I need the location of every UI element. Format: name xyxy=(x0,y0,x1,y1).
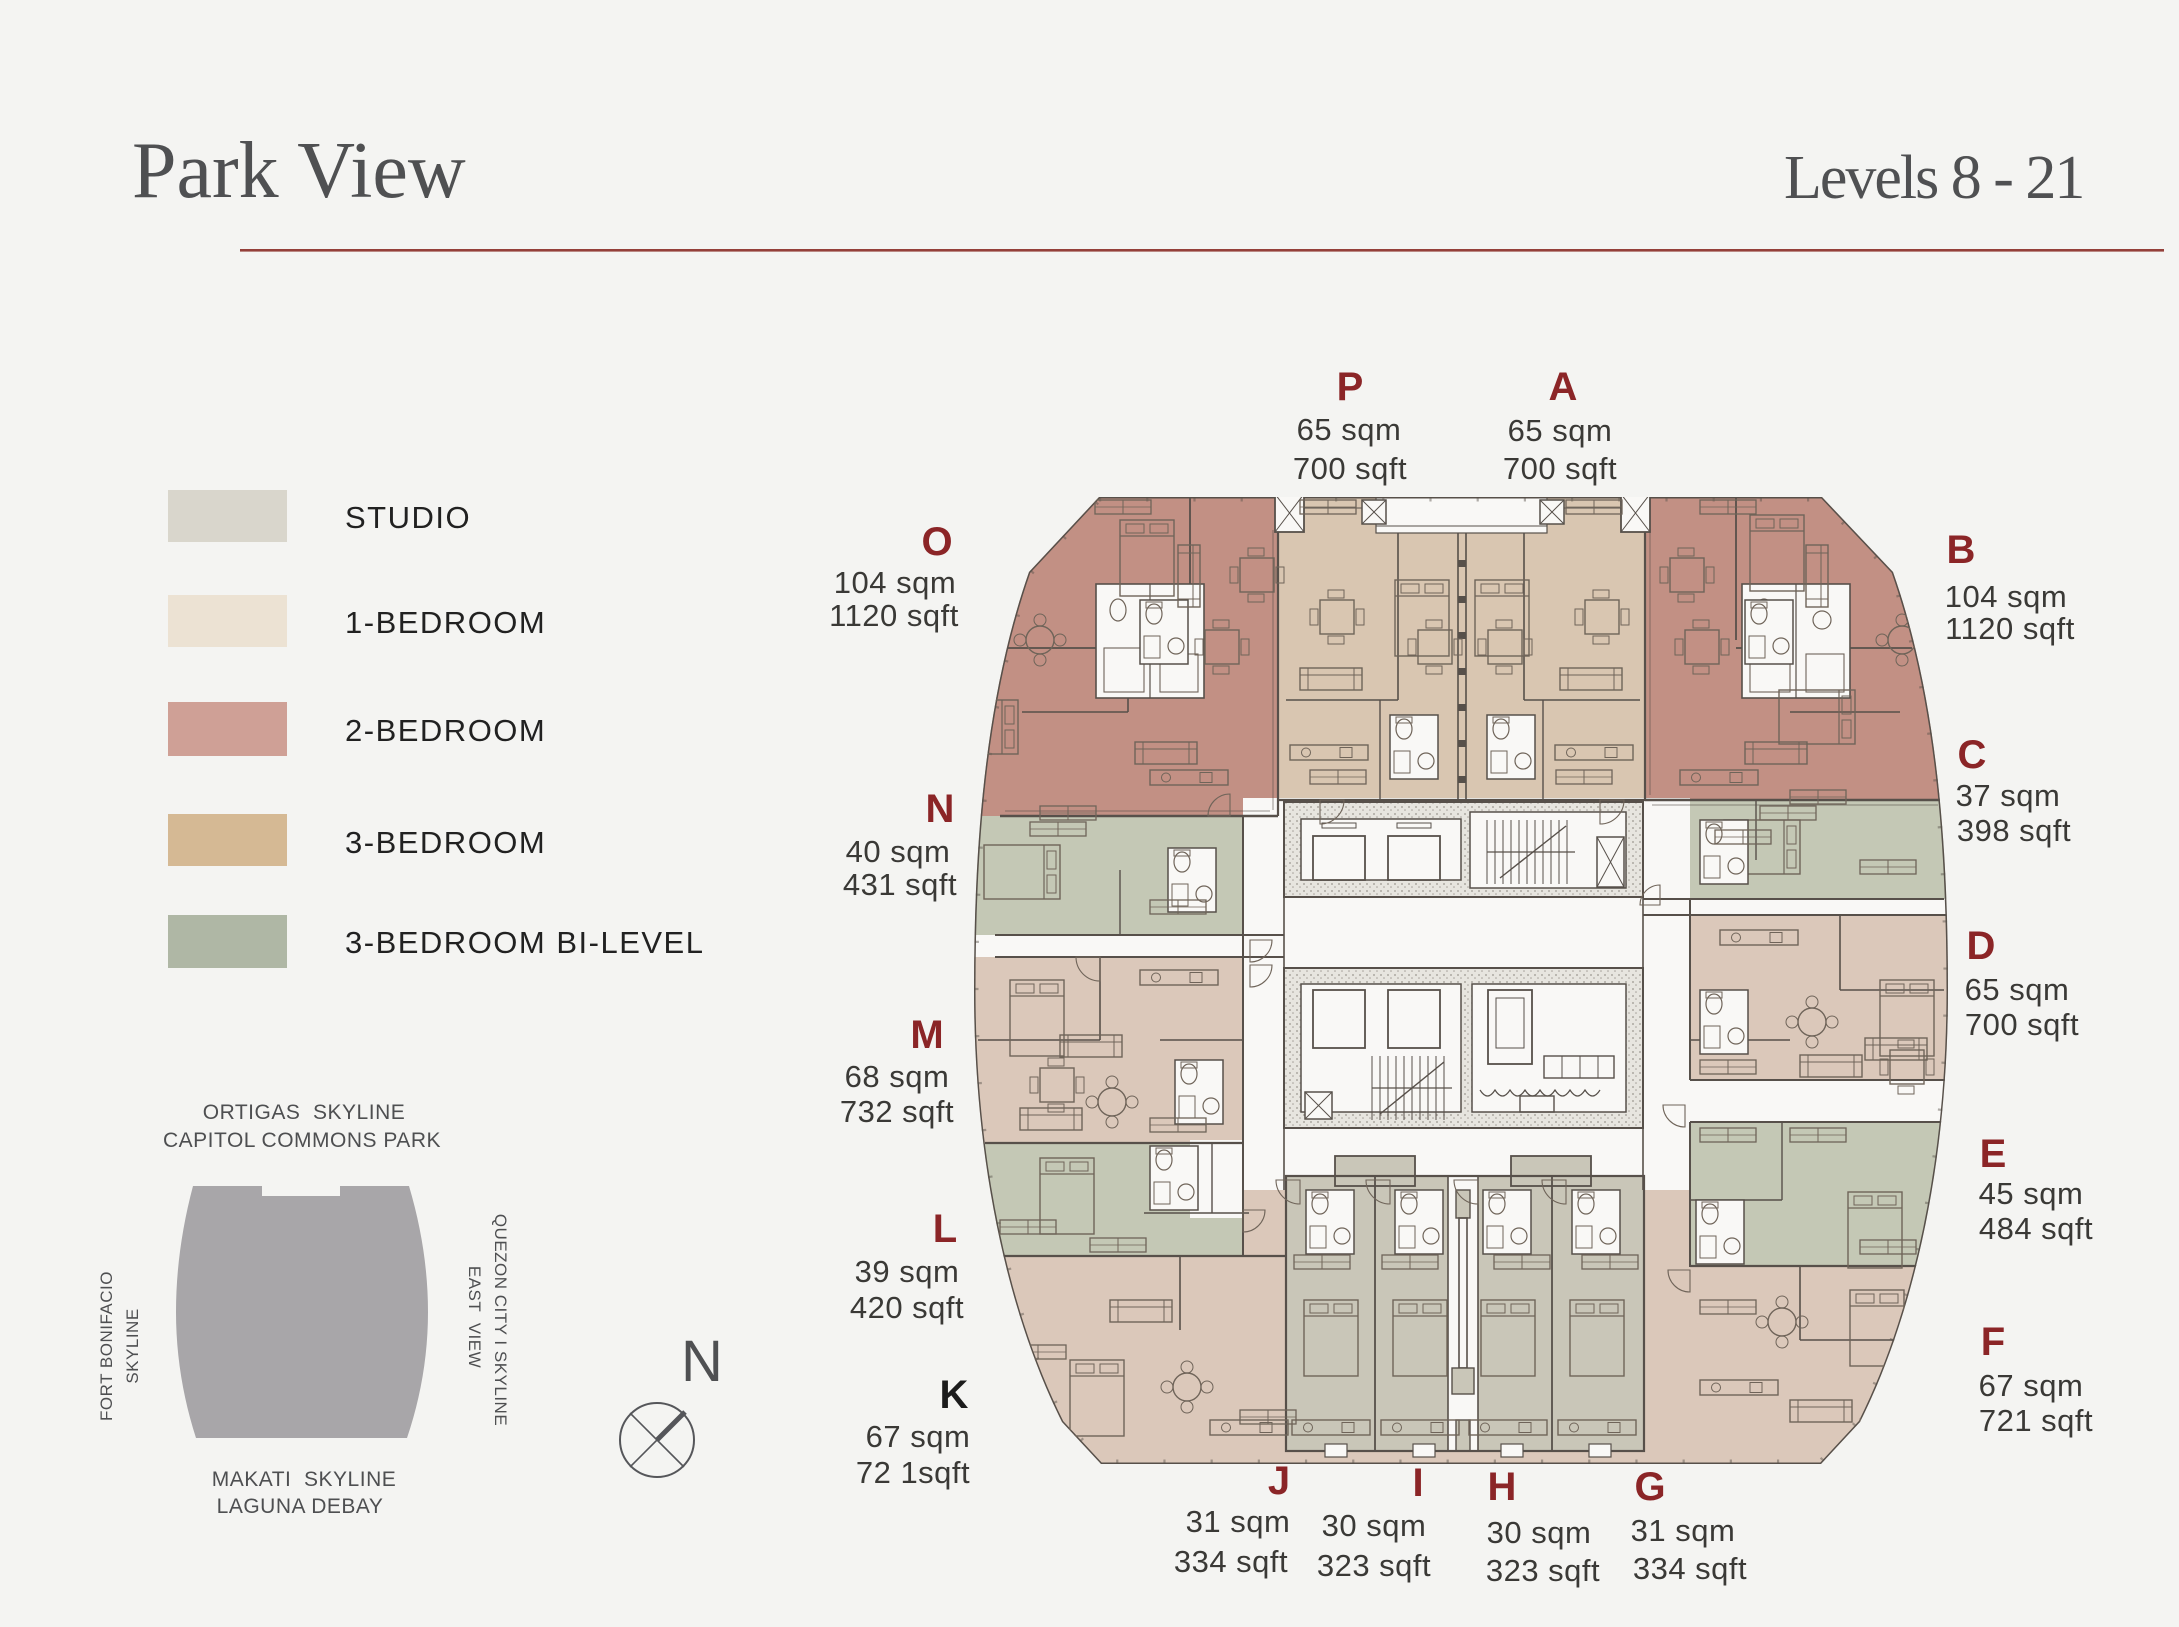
svg-text:31 sqm: 31 sqm xyxy=(1186,1504,1291,1539)
svg-text:45 sqm: 45 sqm xyxy=(1979,1176,2084,1211)
svg-text:104 sqm: 104 sqm xyxy=(834,565,956,600)
svg-text:1120 sqft: 1120 sqft xyxy=(829,598,959,633)
svg-text:SKYLINE: SKYLINE xyxy=(123,1308,142,1383)
svg-text:B: B xyxy=(1947,528,1976,572)
svg-text:K: K xyxy=(940,1373,969,1417)
svg-text:68 sqm: 68 sqm xyxy=(845,1059,950,1094)
svg-text:39 sqm: 39 sqm xyxy=(855,1254,960,1289)
svg-text:D: D xyxy=(1967,924,1996,968)
svg-text:431 sqft: 431 sqft xyxy=(843,867,957,902)
svg-text:721 sqft: 721 sqft xyxy=(1979,1403,2093,1438)
svg-text:A: A xyxy=(1549,365,1578,409)
svg-text:334 sqft: 334 sqft xyxy=(1174,1544,1288,1579)
svg-text:FORT BONIFACIO: FORT BONIFACIO xyxy=(97,1271,116,1421)
svg-text:420 sqft: 420 sqft xyxy=(850,1290,964,1325)
svg-text:334 sqft: 334 sqft xyxy=(1633,1551,1747,1586)
svg-text:732 sqft: 732 sqft xyxy=(840,1094,954,1129)
svg-text:P: P xyxy=(1337,365,1364,409)
svg-text:40 sqm: 40 sqm xyxy=(846,834,951,869)
svg-text:G: G xyxy=(1634,1465,1665,1509)
svg-text:F: F xyxy=(1981,1320,2005,1364)
svg-text:N: N xyxy=(926,787,955,831)
svg-text:72 1sqft: 72 1sqft xyxy=(856,1455,970,1490)
svg-text:E: E xyxy=(1980,1132,2007,1176)
svg-text:C: C xyxy=(1958,733,1987,777)
svg-text:700 sqft: 700 sqft xyxy=(1293,451,1407,486)
svg-text:L: L xyxy=(933,1207,957,1251)
svg-text:67 sqm: 67 sqm xyxy=(1979,1368,2084,1403)
svg-text:EAST VIEW: EAST VIEW xyxy=(465,1266,484,1368)
svg-text:Park View: Park View xyxy=(132,127,466,215)
svg-text:484 sqft: 484 sqft xyxy=(1979,1211,2093,1246)
svg-text:N: N xyxy=(681,1329,723,1394)
svg-text:104 sqm: 104 sqm xyxy=(1945,579,2067,614)
svg-text:MAKATI SKYLINE: MAKATI SKYLINE xyxy=(212,1468,397,1491)
svg-text:700 sqft: 700 sqft xyxy=(1965,1007,2079,1042)
svg-text:QUEZON CITY I SKYLINE: QUEZON CITY I SKYLINE xyxy=(491,1214,510,1426)
svg-text:I: I xyxy=(1412,1461,1423,1505)
svg-text:65 sqm: 65 sqm xyxy=(1965,972,2070,1007)
svg-text:STUDIO: STUDIO xyxy=(345,500,471,535)
svg-text:65 sqm: 65 sqm xyxy=(1297,412,1402,447)
svg-text:700 sqft: 700 sqft xyxy=(1503,451,1617,486)
svg-text:2-BEDROOM: 2-BEDROOM xyxy=(345,713,546,748)
svg-text:Levels 8 - 21: Levels 8 - 21 xyxy=(1784,144,2083,212)
svg-text:3-BEDROOM: 3-BEDROOM xyxy=(345,825,546,860)
svg-text:J: J xyxy=(1268,1459,1290,1503)
svg-text:67 sqm: 67 sqm xyxy=(866,1419,971,1454)
svg-text:3-BEDROOM BI-LEVEL: 3-BEDROOM BI-LEVEL xyxy=(345,925,704,960)
svg-text:30 sqm: 30 sqm xyxy=(1487,1515,1592,1550)
svg-text:323 sqft: 323 sqft xyxy=(1317,1548,1431,1583)
svg-text:O: O xyxy=(921,520,952,564)
svg-text:65 sqm: 65 sqm xyxy=(1508,413,1613,448)
svg-text:ORTIGAS SKYLINE: ORTIGAS SKYLINE xyxy=(203,1101,406,1124)
svg-text:1120 sqft: 1120 sqft xyxy=(1945,611,2075,646)
svg-text:31 sqm: 31 sqm xyxy=(1631,1513,1736,1548)
svg-text:398 sqft: 398 sqft xyxy=(1957,813,2071,848)
svg-text:1-BEDROOM: 1-BEDROOM xyxy=(345,605,546,640)
svg-text:H: H xyxy=(1488,1465,1517,1509)
svg-text:M: M xyxy=(910,1013,943,1057)
svg-text:CAPITOL COMMONS PARK: CAPITOL COMMONS PARK xyxy=(163,1129,441,1152)
svg-text:37 sqm: 37 sqm xyxy=(1956,778,2061,813)
svg-text:30 sqm: 30 sqm xyxy=(1322,1508,1427,1543)
svg-text:323 sqft: 323 sqft xyxy=(1486,1553,1600,1588)
svg-text:LAGUNA DEBAY: LAGUNA DEBAY xyxy=(217,1495,384,1518)
